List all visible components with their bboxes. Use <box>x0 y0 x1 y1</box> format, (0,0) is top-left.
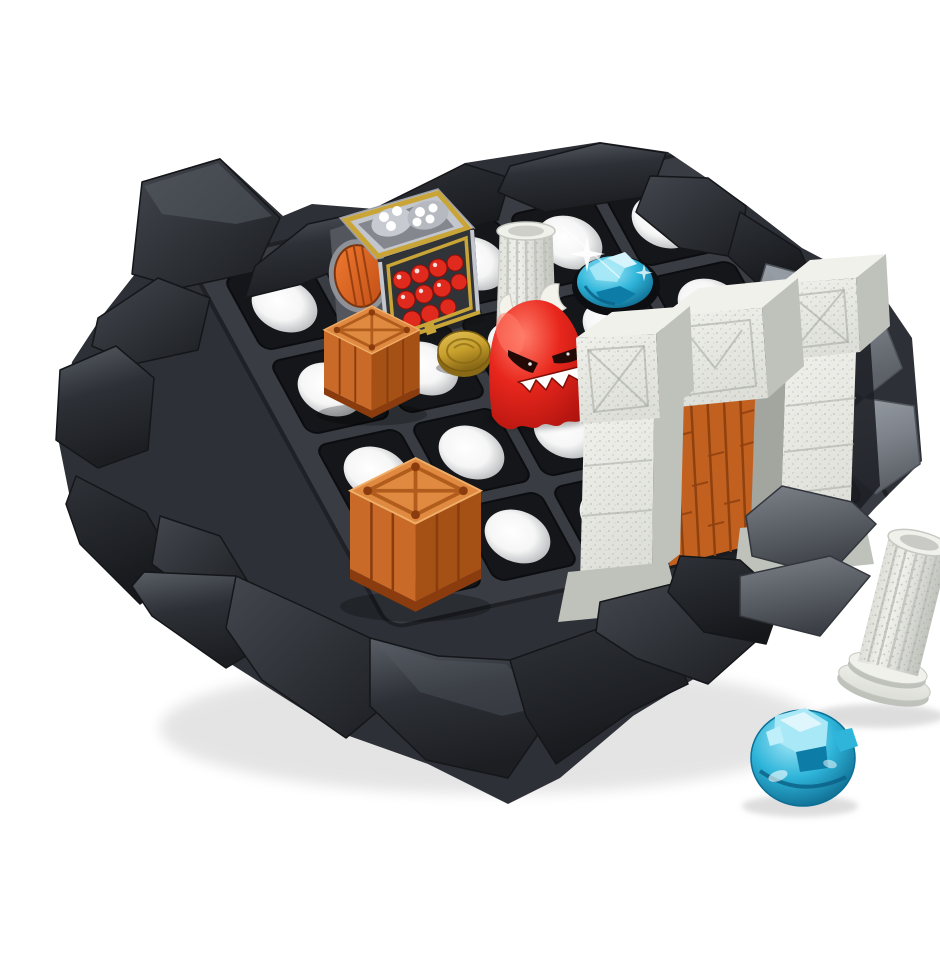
scene-illustration <box>40 16 940 956</box>
product-photo: Board game product photo: a dark grey ro… <box>40 16 940 956</box>
gold-coin <box>436 331 492 377</box>
